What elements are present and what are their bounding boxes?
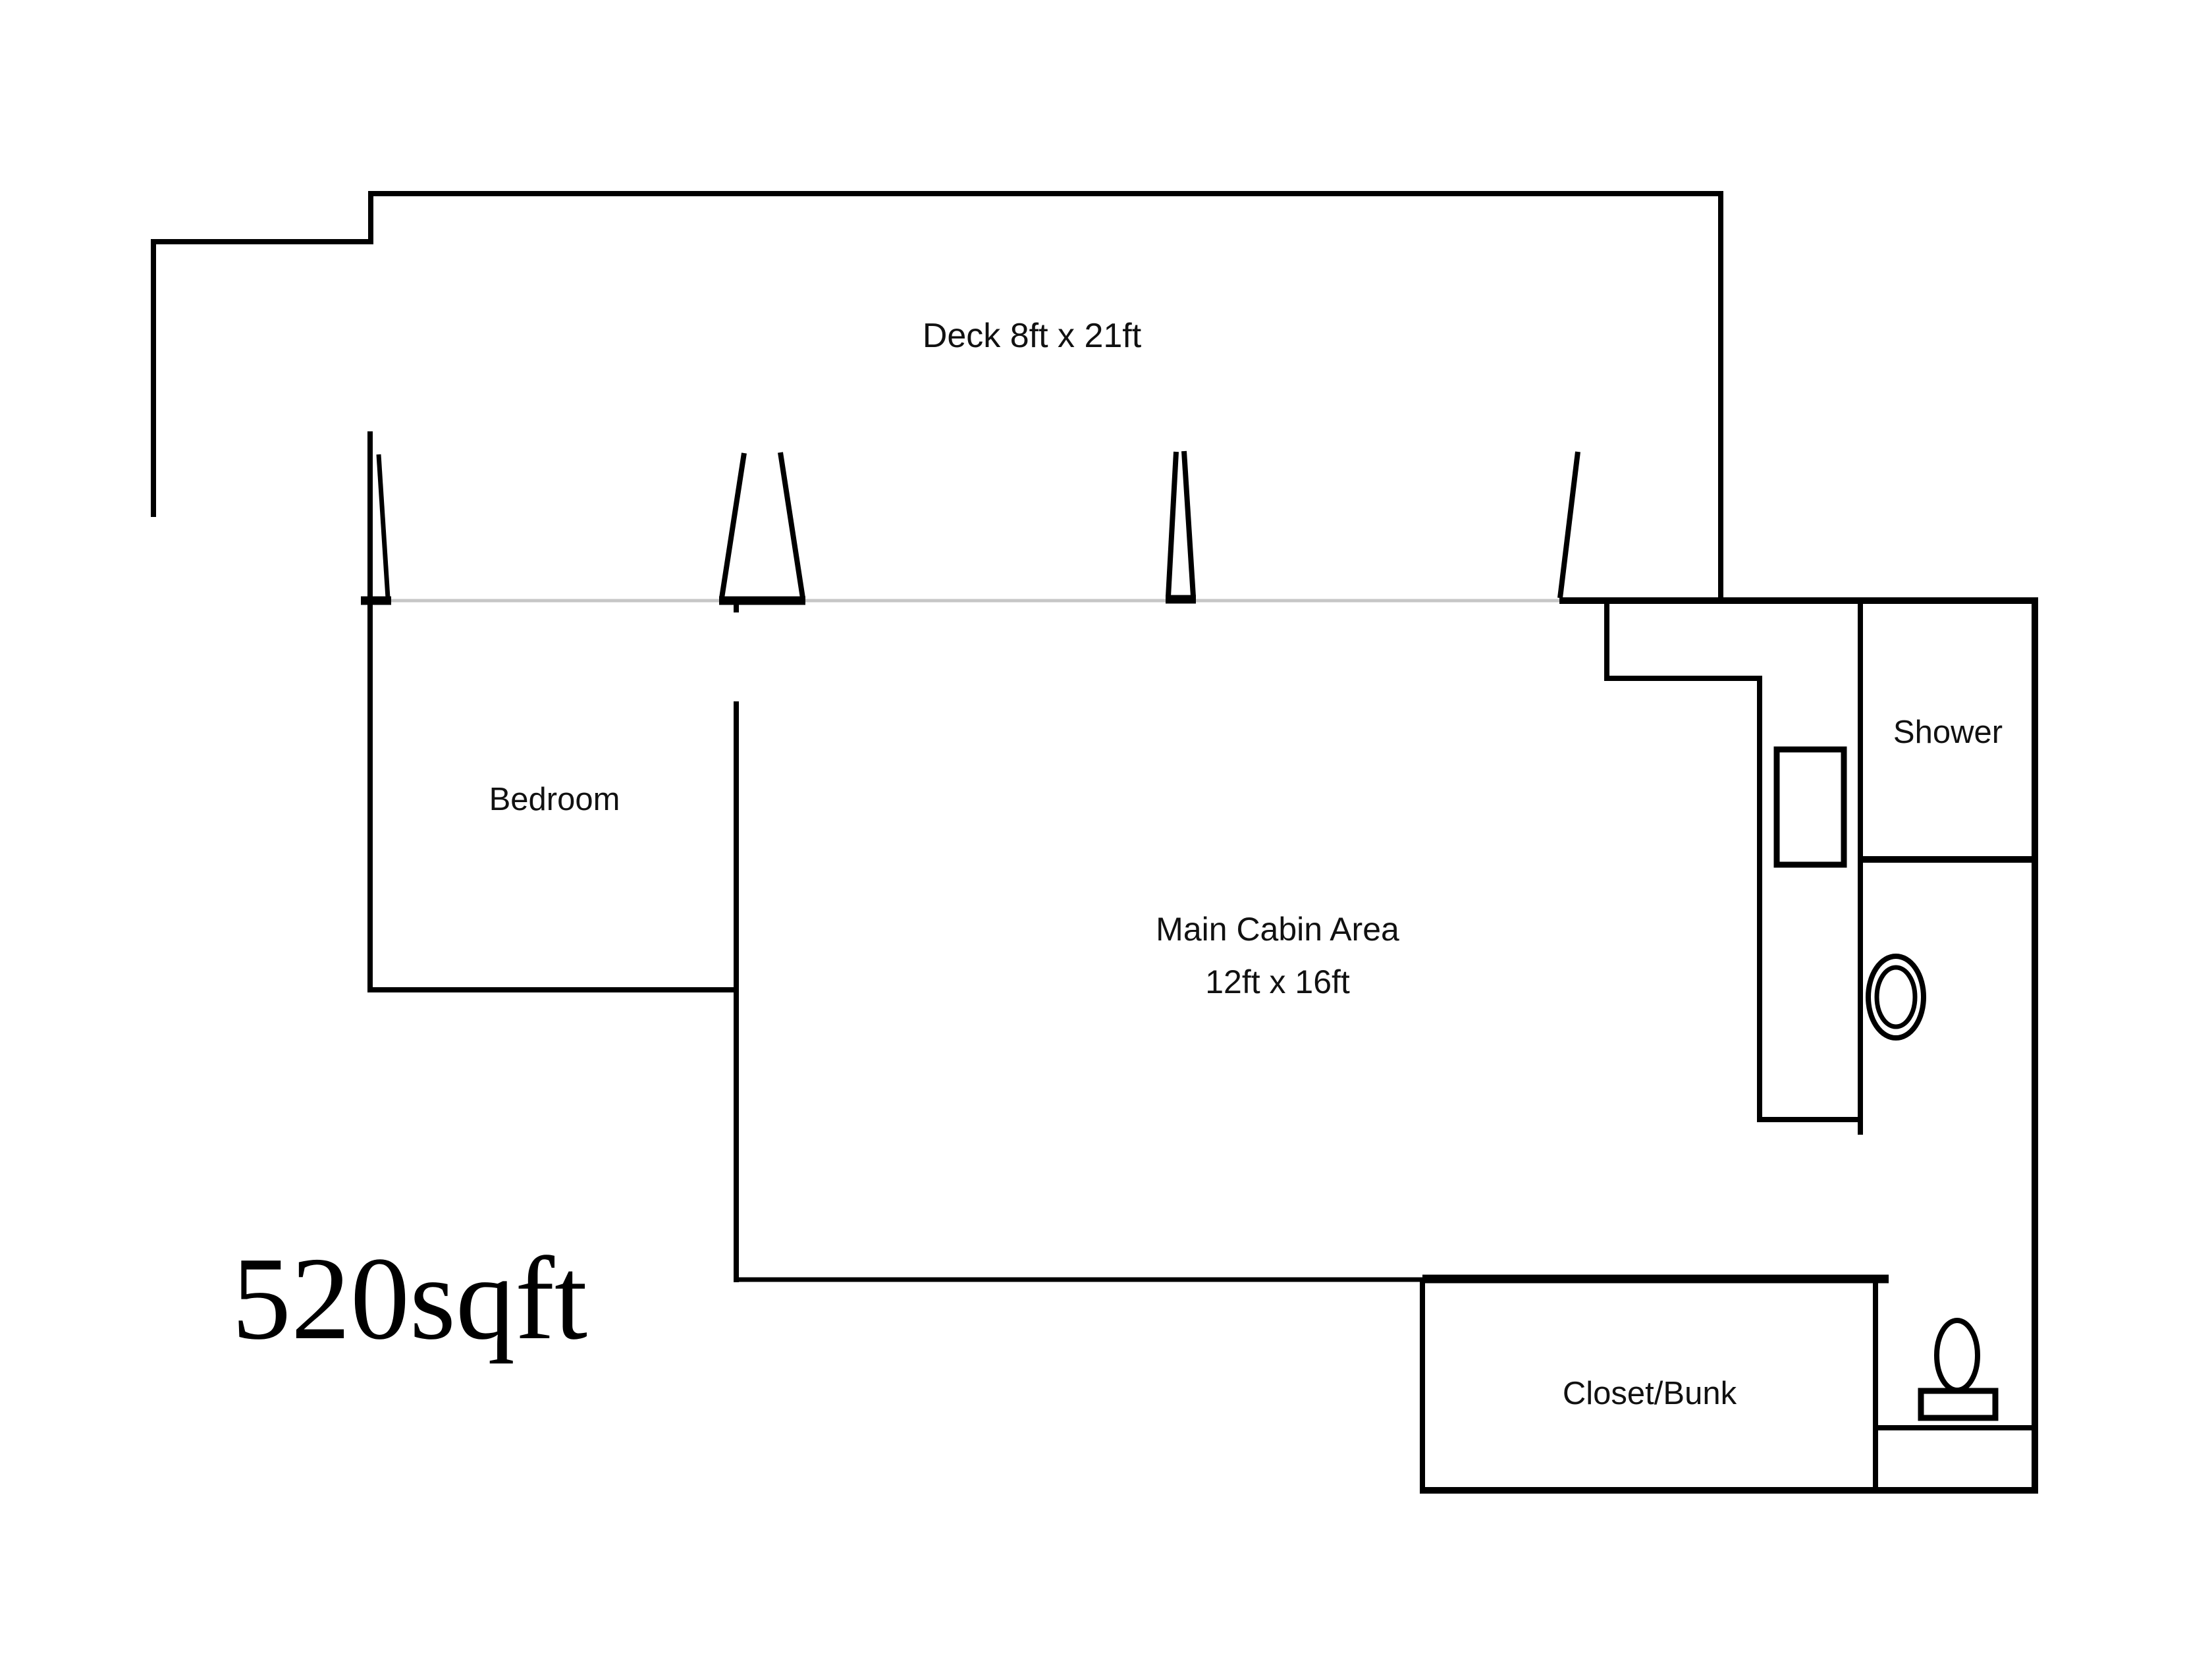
counter-appliance-icon <box>1777 749 1844 865</box>
door-leaf-mark-4 <box>1560 452 1578 598</box>
window-mark-2-left <box>722 453 744 598</box>
window-mark-3-left <box>1168 452 1176 597</box>
window-mark-2-right <box>780 452 803 598</box>
main-cabin-label: Main Cabin Area <box>1156 911 1399 948</box>
main-cabin-dimensions-label: 12ft x 16ft <box>1205 963 1350 1000</box>
closet-bunk-label: Closet/Bunk <box>1563 1376 1737 1411</box>
toilet-bowl-icon <box>1937 1320 1978 1390</box>
shower-label: Shower <box>1893 715 2003 750</box>
total-area-label: 520sqft <box>232 1233 587 1364</box>
floor-plan-drawing: Deck 8ft x 21ft Bedroom Main Cabin Area … <box>0 0 2185 1680</box>
deck-label: Deck 8ft x 21ft <box>923 317 1142 355</box>
bedroom-label: Bedroom <box>489 782 620 817</box>
toilet-tank-icon <box>1921 1391 1995 1418</box>
window-mark-3-right <box>1184 451 1193 597</box>
sink-inner-oval-icon <box>1877 967 1915 1027</box>
floor-plan-page: Deck 8ft x 21ft Bedroom Main Cabin Area … <box>0 0 2185 1680</box>
door-leaf-mark-1 <box>379 454 388 598</box>
